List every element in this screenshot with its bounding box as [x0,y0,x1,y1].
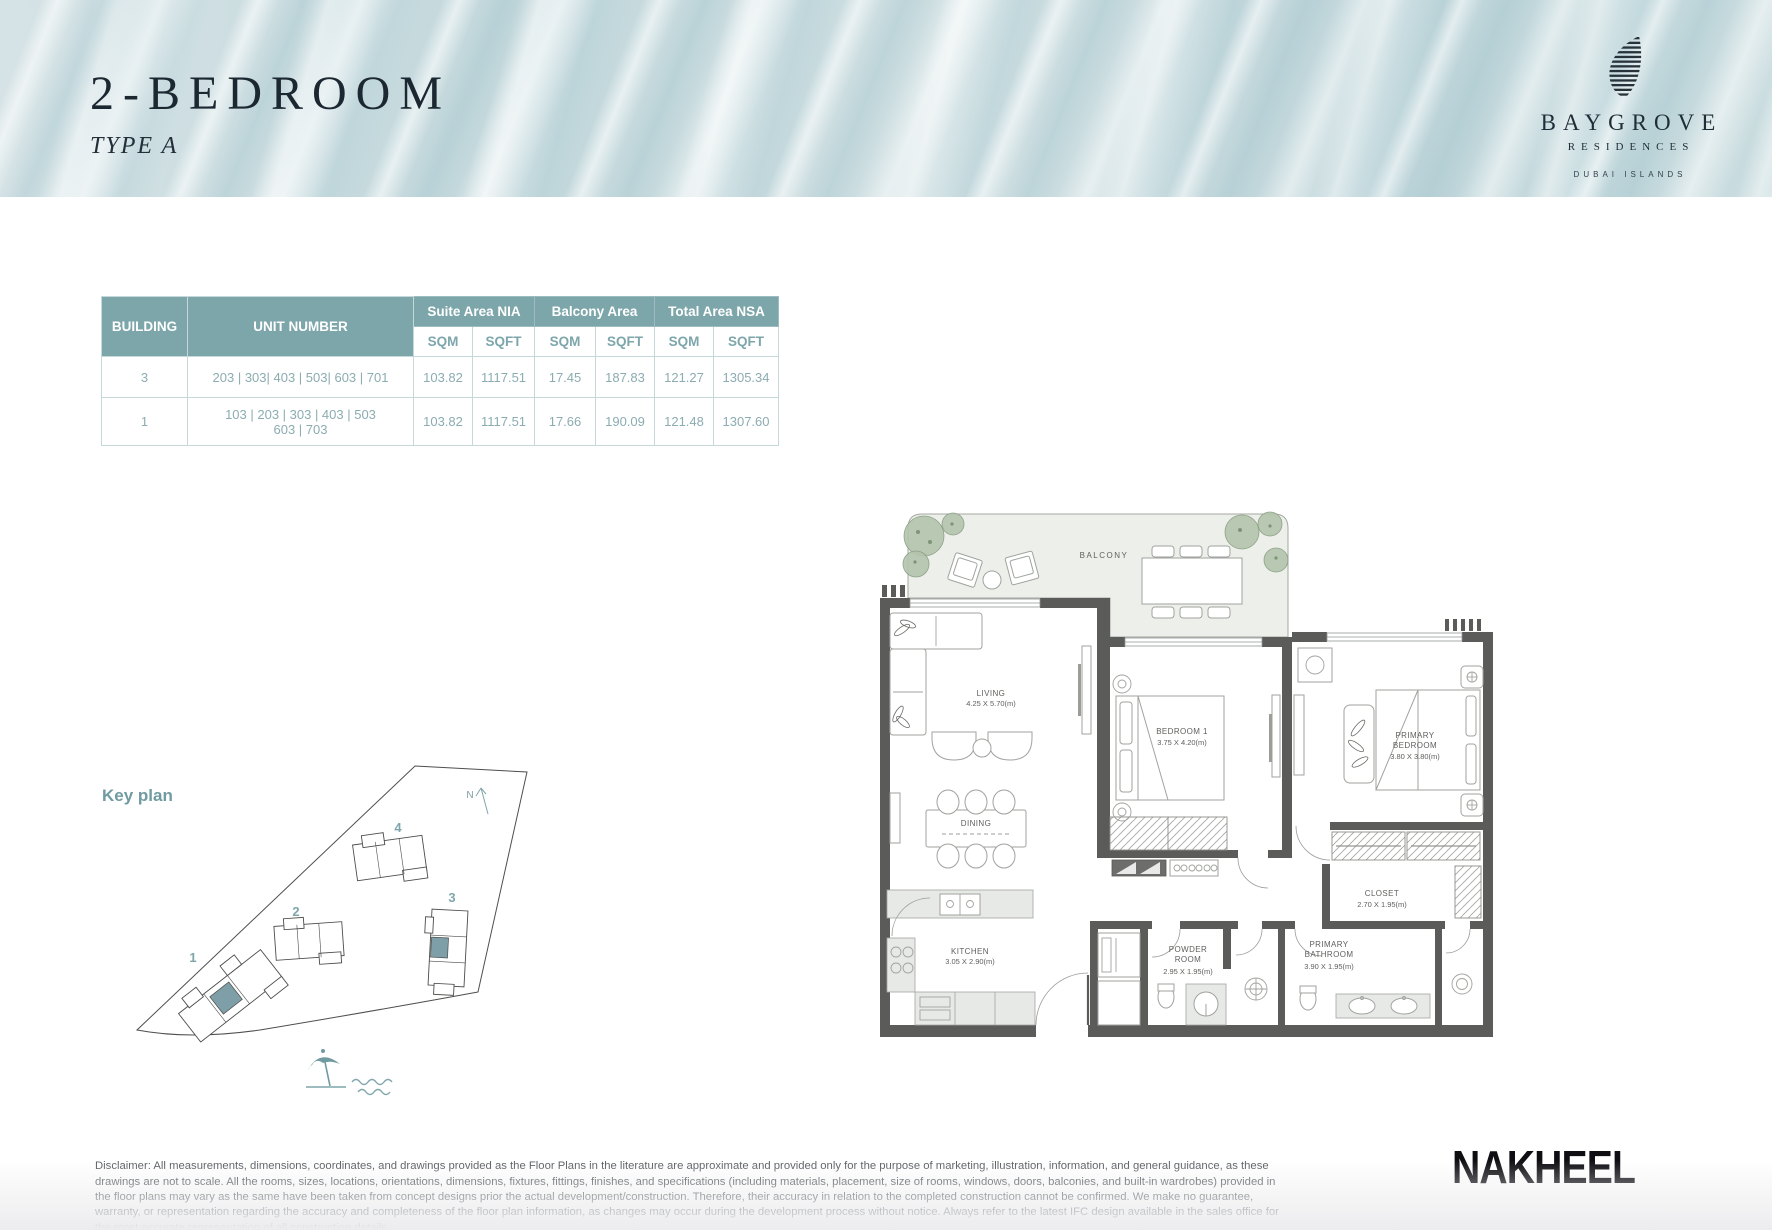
primary-bedroom-dims: 3.80 X 3.80(m) [1390,752,1440,761]
svg-text:BATHROOM: BATHROOM [1305,950,1354,959]
units-line1: 103 | 203 | 303 | 403 | 503 [188,407,413,422]
building-3-number: 3 [448,890,455,905]
dining-area: DINING [890,790,1026,868]
armchair [988,732,1032,760]
dining-label: DINING [961,819,991,828]
col-total-sqft: SQFT [714,327,779,357]
brand-block: BAYGROVE RESIDENCES DUBAI ISLANDS [1528,36,1728,179]
tv-icon [1269,714,1272,762]
building-1-number: 1 [189,950,196,965]
page-subtitle: TYPE A [90,133,451,160]
suite-sqft-cell: 1117.51 [473,398,535,446]
keyplan-building-3 [422,909,468,996]
primary-bathroom-dims: 3.90 X 1.95(m) [1304,962,1354,971]
unit-area-table: BUILDING UNIT NUMBER Suite Area NIA Balc… [101,296,779,446]
building-cell: 1 [102,398,188,446]
living-room: LIVING 4.25 X 5.70(m) [890,613,1091,760]
keyplan-building-2 [273,915,344,968]
keyplan-map: N 4 2 3 [120,740,580,1140]
primary-bedroom-label: PRIMARY [1395,731,1434,740]
kitchen-dims: 3.05 X 2.90(m) [945,957,995,966]
total-sqft-cell: 1307.60 [714,398,779,446]
bedside-lamp [1113,675,1131,693]
bottom-fade [0,1160,1772,1230]
closet-label: CLOSET [1365,889,1399,898]
col-suite-sqm: SQM [414,327,473,357]
tv-console [1294,695,1304,775]
side-table [973,739,991,757]
tv-console [1082,646,1091,734]
primary-bathroom: PRIMARY BATHROOM 3.90 X 1.95(m) [1295,929,1430,1018]
round-table [983,571,1001,589]
sideboard [890,793,900,843]
col-suite-area: Suite Area NIA [414,297,535,327]
page-title: 2-BEDROOM [90,66,451,121]
bedroom1-label: BEDROOM 1 [1156,727,1208,736]
col-building: BUILDING [102,297,188,357]
unit-floor-plan: BALCONY [870,500,1520,1060]
total-sqm-cell: 121.48 [655,398,714,446]
wave-icon [358,1090,390,1095]
highlighted-unit-building-3 [430,937,448,958]
balcony-sqm-cell: 17.45 [535,357,596,398]
col-suite-sqft: SQFT [473,327,535,357]
sink [1391,998,1417,1014]
building-4-number: 4 [394,820,402,835]
balcony-label: BALCONY [1080,551,1129,560]
table-row: 1 103 | 203 | 303 | 403 | 503603 | 703 1… [102,398,779,446]
kitchen-label: KITCHEN [951,947,989,956]
svg-text:ROOM: ROOM [1175,955,1202,964]
entry-door [1036,973,1088,1025]
primary-bathroom-label: PRIMARY [1309,940,1348,949]
col-balcony-area: Balcony Area [535,297,655,327]
tv-icon [1078,664,1081,716]
beach-umbrella-icon [306,1049,392,1095]
hallway-laundry [1112,860,1218,876]
balcony-sqft-cell: 190.09 [596,398,655,446]
living-dims: 4.25 X 5.70(m) [966,699,1016,708]
baygrove-palm-icon [1605,36,1651,98]
powder-room: POWDER ROOM 2.95 X 1.95(m) [1152,929,1226,1025]
armchair [932,732,976,760]
col-total-area: Total Area NSA [655,297,779,327]
col-balcony-sqm: SQM [535,327,596,357]
building-cell: 3 [102,357,188,398]
wardrobe [1110,817,1227,850]
balcony-sqm-cell: 17.66 [535,398,596,446]
closet-dims: 2.70 X 1.95(m) [1357,900,1407,909]
suite-sqft-cell: 1117.51 [473,357,535,398]
sink [1349,998,1375,1014]
total-sqm-cell: 121.27 [655,357,714,398]
tv-console [1272,695,1280,777]
balcony-sqft-cell: 187.83 [596,357,655,398]
brand-sub: RESIDENCES [1534,141,1728,153]
bedroom1-dims: 3.75 X 4.20(m) [1157,738,1207,747]
primary-bedroom: PRIMARY BEDROOM 3.80 X 3.80(m) [1294,648,1483,816]
table-row: 3 203 | 303| 403 | 503| 603 | 701 103.82… [102,357,779,398]
units-cell: 103 | 203 | 303 | 403 | 503603 | 703 [188,398,414,446]
suite-sqm-cell: 103.82 [414,398,473,446]
wave-icon [352,1080,392,1085]
shower-drain [1452,974,1472,994]
col-unit-number: UNIT NUMBER [188,297,414,357]
svg-text:N: N [466,790,473,801]
brand-name: BAYGROVE [1535,110,1728,136]
powder-room-label: POWDER [1169,945,1207,954]
ensuite-shower [1446,929,1472,994]
living-label: LIVING [977,689,1006,698]
building-2-number: 2 [292,904,299,919]
north-arrow-icon: N [466,788,488,814]
shower-room [1236,929,1267,1000]
units-cell: 203 | 303| 403 | 503| 603 | 701 [188,357,414,398]
dresser [1298,648,1332,682]
total-sqft-cell: 1305.34 [714,357,779,398]
outdoor-dining-table [1142,546,1242,618]
svg-text:BEDROOM: BEDROOM [1393,741,1437,750]
keyplan-building-4 [351,827,427,887]
col-balcony-sqft: SQFT [596,327,655,357]
kitchen: KITCHEN 3.05 X 2.90(m) [887,890,1035,1025]
storage-closet [1098,933,1140,1025]
suite-sqm-cell: 103.82 [414,357,473,398]
col-total-sqm: SQM [655,327,714,357]
title-block: 2-BEDROOM TYPE A [90,66,451,160]
powder-room-dims: 2.95 X 1.95(m) [1163,967,1213,976]
units-line2: 603 | 703 [188,422,413,437]
floorplan-page: 2-BEDROOM TYPE A BAYGROVE RESIDENCES DUB… [0,0,1772,1230]
brand-location: DUBAI ISLANDS [1532,170,1728,179]
